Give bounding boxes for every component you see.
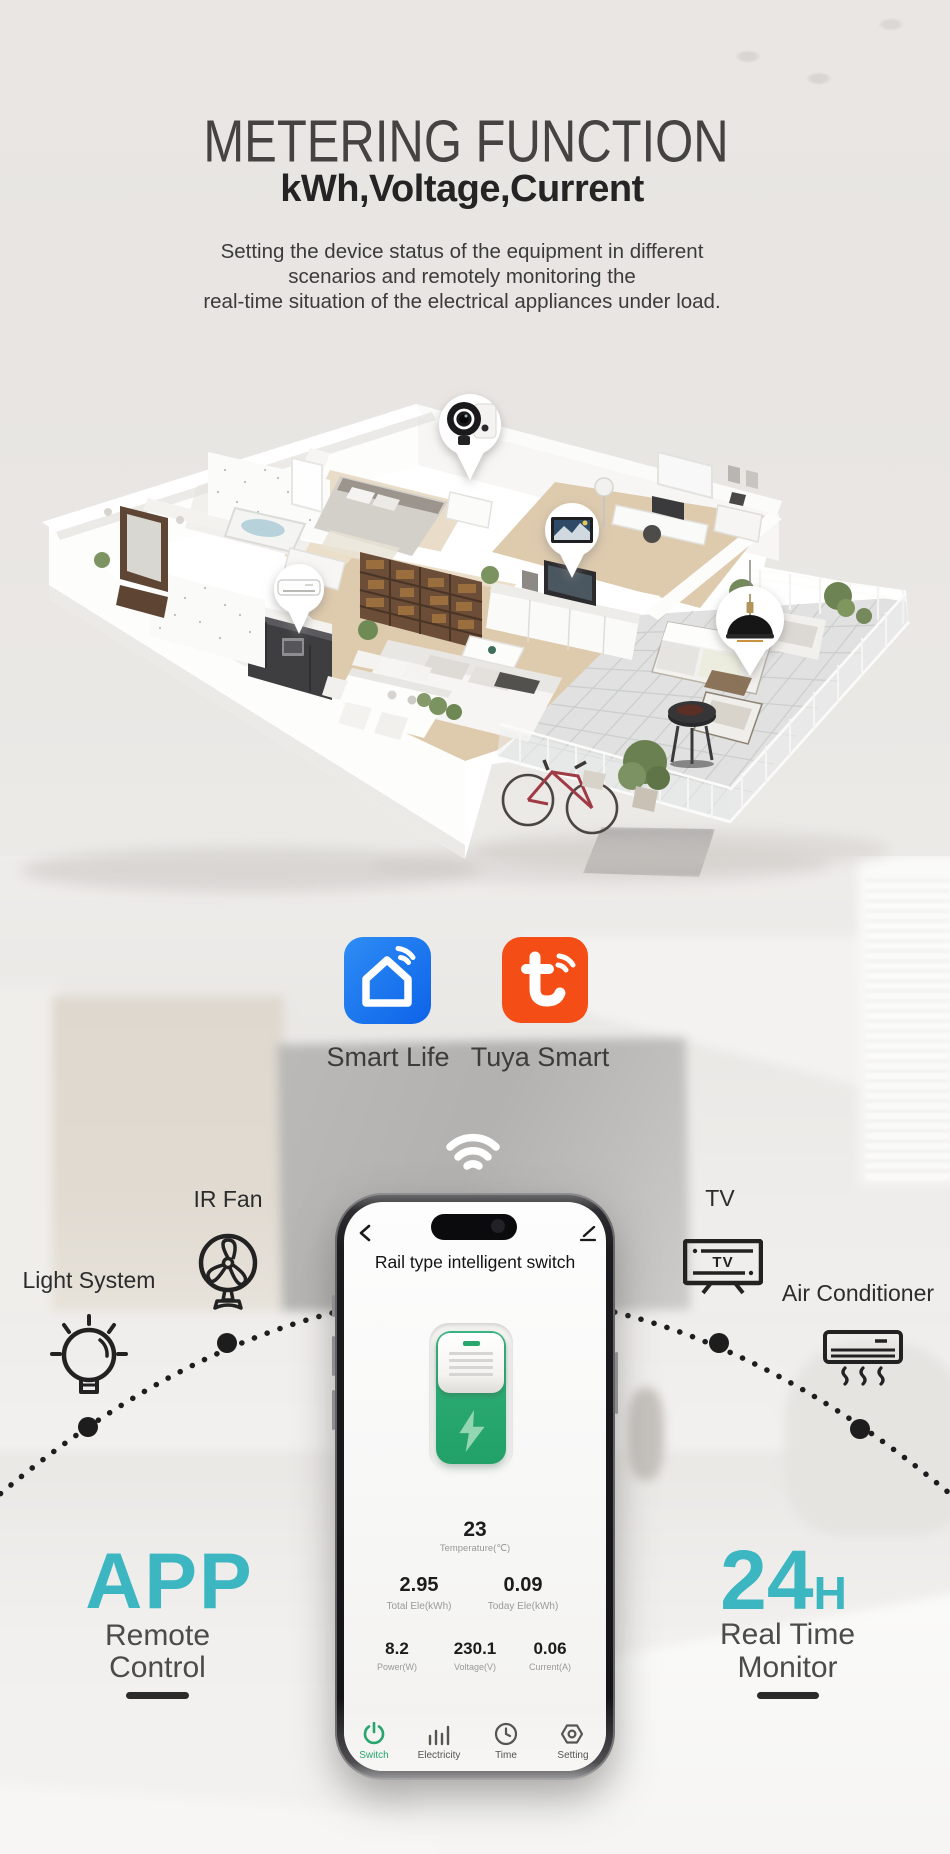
svg-text:TV: TV bbox=[712, 1254, 733, 1271]
